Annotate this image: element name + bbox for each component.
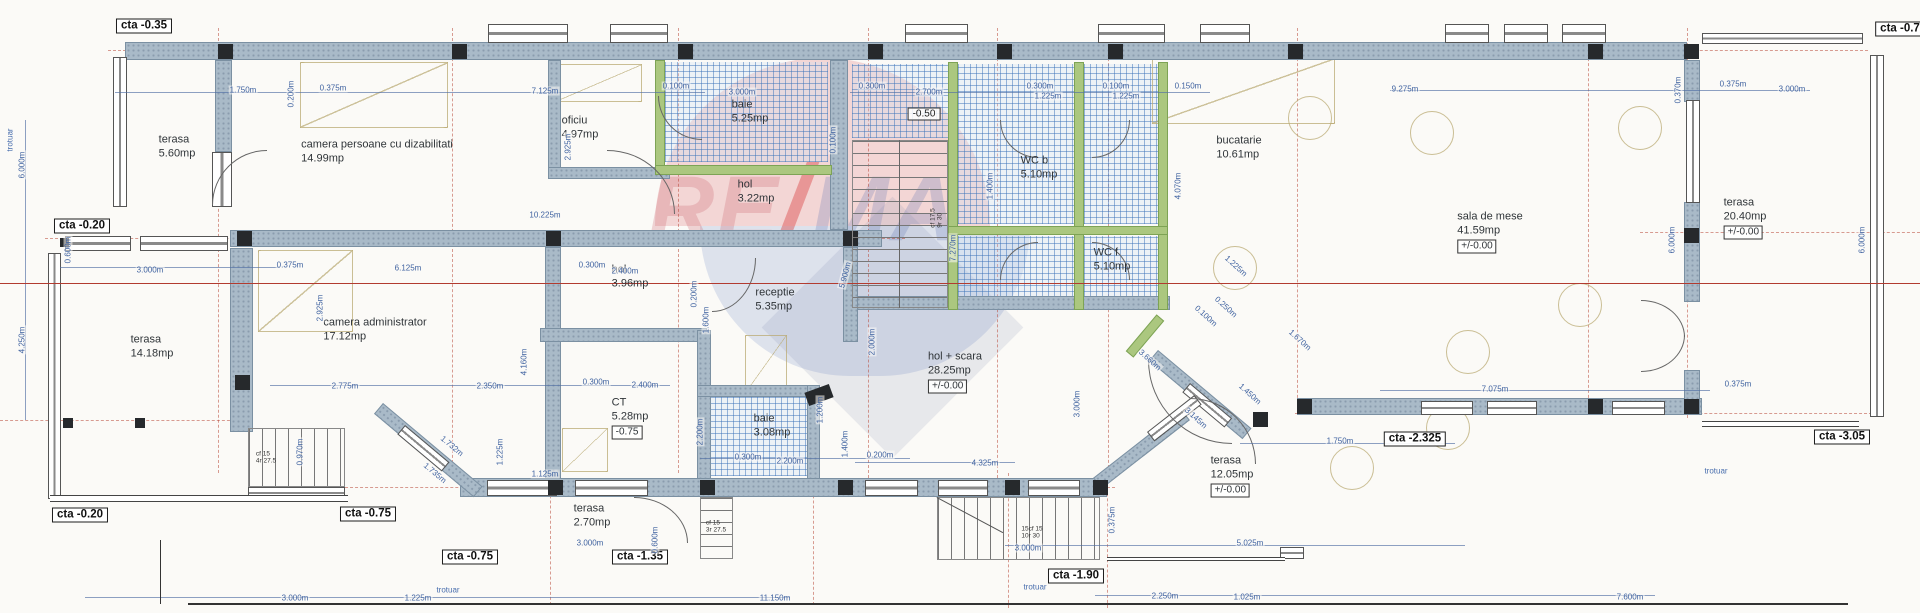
room-area: 5.28mp bbox=[612, 410, 649, 424]
room-area: 10.61mp bbox=[1216, 148, 1261, 162]
axis-dashed-line bbox=[452, 28, 453, 473]
dining-table-icon bbox=[1618, 106, 1662, 150]
dimension-15: 9.275m bbox=[1391, 85, 1420, 94]
room-label-3-baie: baie5.25mp bbox=[732, 98, 769, 126]
dimension-58: 0.100m bbox=[1192, 303, 1219, 329]
room-name: hol bbox=[738, 178, 775, 192]
dimension-68: 3.000m bbox=[576, 539, 605, 548]
room-name: camera persoane cu dizabilitati bbox=[301, 138, 453, 152]
section-line bbox=[0, 283, 1920, 284]
room-name: baie bbox=[732, 98, 769, 112]
dining-table-icon bbox=[1558, 283, 1602, 327]
dimension-46: 0.200m bbox=[866, 451, 895, 460]
dimension-32: 7.270m bbox=[949, 234, 958, 263]
level-marker-0: cta -0.35 bbox=[116, 19, 172, 34]
door-swing-arc bbox=[634, 497, 688, 543]
level-marker-2: cta -0.20 bbox=[52, 508, 108, 523]
stair-note-1: cf 15 3r 27.5 bbox=[706, 520, 726, 535]
furniture-outline bbox=[556, 64, 642, 102]
room-label-13-receptie: receptie5.35mp bbox=[755, 286, 794, 314]
column-marker bbox=[1253, 412, 1268, 427]
dimension-2: 0.200m bbox=[287, 80, 296, 109]
level-marker-6: cta -1.90 bbox=[1048, 569, 1104, 584]
room-area: 3.96mp bbox=[612, 277, 649, 291]
window bbox=[487, 480, 557, 496]
room-area: 5.60mp bbox=[159, 147, 196, 161]
column-marker bbox=[678, 44, 693, 59]
dimension-14: 0.150m bbox=[1174, 82, 1203, 91]
annotation-trotuar-0: trotuar bbox=[436, 586, 459, 595]
dimension-38: 2.400m bbox=[631, 381, 660, 390]
wall-segment bbox=[540, 328, 707, 342]
dining-table-icon bbox=[1330, 446, 1374, 490]
room-name: oficiu bbox=[562, 114, 599, 128]
wall-segment bbox=[1684, 60, 1700, 102]
wall-segment bbox=[125, 42, 1687, 60]
room-label-8-sala-de-mese: sala de mese41.59mp+/-0.00 bbox=[1457, 211, 1522, 254]
dimension-44: 0.300m bbox=[734, 453, 763, 462]
column-marker bbox=[1108, 44, 1123, 59]
room-name: camera administrator bbox=[323, 316, 426, 330]
window bbox=[938, 480, 988, 496]
dimension-60: 1.750m bbox=[1326, 437, 1355, 446]
column-marker bbox=[452, 44, 467, 59]
dimension-75: 1.025m bbox=[1233, 593, 1262, 602]
column-marker bbox=[700, 480, 715, 495]
dimension-23: 0.375m bbox=[276, 261, 305, 270]
dimension-31: 2.000m bbox=[868, 328, 877, 357]
room-label-17-terasa: terasa2.70mp bbox=[574, 502, 611, 530]
room-area: 2.70mp bbox=[574, 516, 611, 530]
room-elevation: -0.75 bbox=[612, 425, 643, 440]
dimension-9: 2.700m bbox=[915, 88, 944, 97]
wall-segment bbox=[548, 60, 561, 170]
wall-segment bbox=[230, 248, 253, 432]
dimension-10: 0.300m bbox=[1026, 82, 1055, 91]
window bbox=[1487, 401, 1537, 415]
dimension-line bbox=[115, 92, 705, 93]
dimension-70: 0.970m bbox=[296, 438, 305, 467]
column-marker bbox=[63, 418, 73, 428]
room-name: WC b bbox=[1021, 154, 1058, 168]
dimension-42: 1.225m bbox=[496, 438, 505, 467]
room-label-9-terasa: terasa20.40mp+/-0.00 bbox=[1724, 197, 1767, 240]
spot-elevation-0: -0.50 bbox=[908, 108, 941, 121]
room-area: 14.99mp bbox=[301, 152, 453, 166]
green-wall-segment bbox=[655, 165, 832, 175]
dimension-36: 4.160m bbox=[520, 348, 529, 377]
window bbox=[488, 24, 568, 43]
dimension-47: 1.200m bbox=[816, 396, 825, 425]
room-area: 5.25mp bbox=[732, 112, 769, 126]
window bbox=[48, 253, 61, 499]
column-marker bbox=[1288, 44, 1303, 59]
dimension-35: 2.350m bbox=[476, 382, 505, 391]
room-label-4-hol: hol3.22mp bbox=[738, 178, 775, 206]
dining-table-icon bbox=[1410, 111, 1454, 155]
level-marker-8: cta -3.05 bbox=[1814, 430, 1870, 445]
column-marker bbox=[1684, 228, 1699, 243]
column-marker bbox=[838, 480, 853, 495]
level-marker-9: cta -0.7 bbox=[1875, 22, 1920, 37]
room-elevation: +/-0.00 bbox=[1457, 239, 1496, 254]
dimension-74: 2.250m bbox=[1151, 592, 1180, 601]
room-area: 5.35mp bbox=[755, 300, 794, 314]
room-area: 3.08mp bbox=[754, 426, 791, 440]
door-swing-arc bbox=[1641, 300, 1685, 337]
green-wall-segment bbox=[1158, 62, 1168, 310]
column-marker bbox=[997, 44, 1012, 59]
window bbox=[1028, 480, 1080, 496]
room-label-15-baie: baie3.08mp bbox=[754, 412, 791, 440]
window bbox=[610, 24, 668, 43]
dimension-19: 6.000m bbox=[18, 151, 27, 180]
window bbox=[1702, 33, 1863, 44]
dining-table-icon bbox=[1288, 96, 1332, 140]
dining-table-icon bbox=[1446, 330, 1490, 374]
level-marker-5: cta -1.35 bbox=[612, 550, 668, 565]
window bbox=[1421, 401, 1473, 415]
dimension-59: 0.250m bbox=[1212, 294, 1239, 320]
dimension-73: 11.150m bbox=[759, 594, 792, 603]
wall-segment bbox=[1684, 202, 1700, 302]
dimension-72: 1.225m bbox=[404, 594, 433, 603]
window bbox=[905, 24, 968, 43]
terrace-edge bbox=[1107, 557, 1285, 561]
window bbox=[65, 236, 131, 251]
room-area: 41.59mp bbox=[1457, 224, 1522, 238]
dimension-39: 2.200m bbox=[696, 418, 705, 447]
dimension-56: 1.450m bbox=[1236, 381, 1263, 407]
tile-hatch bbox=[852, 64, 948, 138]
room-elevation: +/-0.00 bbox=[1724, 225, 1763, 240]
green-wall-segment bbox=[948, 226, 1168, 235]
dimension-13: 1.225m bbox=[1112, 92, 1141, 101]
room-area: 12.05mp bbox=[1211, 468, 1254, 482]
dimension-line bbox=[1380, 390, 1710, 391]
column-marker bbox=[237, 231, 252, 246]
dimension-6: 3.000m bbox=[728, 88, 757, 97]
window bbox=[140, 236, 228, 251]
room-label-11-camera-administrator: camera administrator17.12mp bbox=[323, 316, 426, 344]
annotation-trotuar-3: trotuar bbox=[6, 128, 15, 151]
dimension-16: 0.375m bbox=[1719, 80, 1748, 89]
room-name: bucatarie bbox=[1216, 134, 1261, 148]
room-name: terasa bbox=[159, 133, 196, 147]
room-area: 5.10mp bbox=[1094, 260, 1131, 274]
window bbox=[865, 480, 918, 496]
column-marker bbox=[1297, 399, 1312, 414]
room-label-16-hol-scara: hol + scara28.25mp+/-0.00 bbox=[928, 351, 982, 394]
axis-dashed-line bbox=[0, 420, 240, 421]
room-area: 17.12mp bbox=[323, 330, 426, 344]
dimension-22: 3.000m bbox=[136, 266, 165, 275]
dimension-0: 1.750m bbox=[229, 86, 258, 95]
door-swing-arc bbox=[1641, 335, 1685, 372]
room-name: terasa bbox=[1724, 197, 1767, 211]
ground-line bbox=[188, 603, 1848, 605]
dimension-52: 4.325m bbox=[971, 459, 1000, 468]
dimension-50: 4.070m bbox=[1174, 172, 1183, 201]
wall-segment bbox=[215, 60, 232, 152]
furniture-outline bbox=[300, 62, 448, 128]
room-area: 20.40mp bbox=[1724, 210, 1767, 224]
dimension-line bbox=[850, 92, 1210, 93]
room-label-14-ct: CT5.28mp-0.75 bbox=[612, 397, 649, 440]
window bbox=[1612, 401, 1665, 415]
room-label-6-wc-f: WC f5.10mp bbox=[1094, 246, 1131, 274]
dimension-57: 1.670m bbox=[1286, 327, 1313, 353]
dimension-76: 7.600m bbox=[1616, 593, 1645, 602]
window bbox=[1445, 24, 1489, 43]
level-marker-4: cta -0.75 bbox=[442, 550, 498, 565]
dimension-line bbox=[85, 597, 790, 598]
room-name: CT bbox=[612, 397, 649, 411]
dimension-65: 0.375m bbox=[1108, 506, 1117, 535]
window bbox=[1686, 100, 1700, 203]
window bbox=[1562, 24, 1606, 43]
column-marker bbox=[548, 480, 563, 495]
column-marker bbox=[235, 375, 250, 390]
stair-note-3: cf 17.5 9r 30 bbox=[930, 208, 945, 228]
dimension-49: 1.400m bbox=[986, 172, 995, 201]
dimension-71: 3.000m bbox=[281, 594, 310, 603]
room-label-0-terasa: terasa5.60mp bbox=[159, 133, 196, 161]
dimension-34: 2.775m bbox=[331, 382, 360, 391]
column-marker bbox=[135, 418, 145, 428]
green-wall-segment bbox=[1074, 62, 1084, 310]
dimension-24: 6.125m bbox=[394, 264, 423, 273]
window bbox=[575, 480, 648, 496]
room-area: 28.25mp bbox=[928, 364, 982, 378]
room-area: 5.10mp bbox=[1021, 168, 1058, 182]
room-name: receptie bbox=[755, 286, 794, 300]
window bbox=[1504, 24, 1548, 43]
dimension-7: 0.100m bbox=[829, 126, 838, 155]
level-marker-7: cta -2.325 bbox=[1384, 432, 1446, 447]
dimension-5: 0.100m bbox=[662, 82, 691, 91]
dimension-8: 0.300m bbox=[858, 82, 887, 91]
column-marker bbox=[1684, 399, 1699, 414]
dimension-line bbox=[60, 267, 280, 268]
dimension-12: 0.100m bbox=[1102, 82, 1131, 91]
room-area: 3.22mp bbox=[738, 192, 775, 206]
dimension-1: 0.375m bbox=[319, 84, 348, 93]
annotation-trotuar-2: trotuar bbox=[1704, 467, 1727, 476]
green-wall-segment bbox=[948, 62, 958, 310]
dimension-66: 5.025m bbox=[1236, 539, 1265, 548]
furniture-outline bbox=[562, 428, 608, 472]
stair-note-2: 15cf 15 10r 30 bbox=[1021, 526, 1042, 541]
room-name: sala de mese bbox=[1457, 211, 1522, 225]
dimension-20: 0.600m bbox=[64, 236, 73, 265]
dimension-4: 2.925m bbox=[564, 133, 573, 162]
room-name: terasa bbox=[574, 502, 611, 516]
room-label-18-terasa: terasa12.05mp+/-0.00 bbox=[1211, 455, 1254, 498]
dimension-67: 3.000m bbox=[1014, 544, 1043, 553]
dimension-37: 0.300m bbox=[582, 378, 611, 387]
room-area: 14.18mp bbox=[131, 347, 174, 361]
level-marker-1: cta -0.20 bbox=[54, 219, 110, 234]
dimension-53: 3.000m bbox=[1073, 390, 1082, 419]
dimension-43: 1.125m bbox=[531, 470, 560, 479]
dimension-21: 4.250m bbox=[18, 326, 27, 355]
window bbox=[113, 57, 127, 207]
floorplan-scan: RE/MA bbox=[0, 0, 1920, 613]
room-name: hol + scara bbox=[928, 351, 982, 365]
room-label-5-wc-b: WC b5.10mp bbox=[1021, 154, 1058, 182]
column-marker bbox=[218, 44, 233, 59]
room-name: WC f bbox=[1094, 246, 1131, 260]
tile-hatch bbox=[958, 236, 1166, 304]
dimension-26: 0.300m bbox=[578, 261, 607, 270]
column-marker bbox=[1588, 399, 1603, 414]
room-name: terasa bbox=[1211, 455, 1254, 469]
dimension-61: 7.075m bbox=[1481, 385, 1510, 394]
room-elevation: +/-0.00 bbox=[1211, 483, 1250, 498]
dimension-25: 10.225m bbox=[528, 211, 561, 220]
window bbox=[1870, 55, 1884, 417]
dimension-11: 1.225m bbox=[1034, 92, 1063, 101]
dimension-28: 0.200m bbox=[690, 280, 699, 309]
room-label-1-camera-persoane-cu-dizabilitati: camera persoane cu dizabilitati14.99mp bbox=[301, 138, 453, 166]
dimension-33: 2.925m bbox=[316, 294, 325, 323]
room-label-10-terasa: terasa14.18mp bbox=[131, 333, 174, 361]
axis-dashed-line bbox=[1588, 28, 1589, 413]
dimension-27: 2.400m bbox=[611, 267, 640, 276]
window bbox=[1098, 24, 1165, 43]
room-elevation: +/-0.00 bbox=[928, 379, 967, 394]
annotation-trotuar-1: trotuar bbox=[1023, 583, 1046, 592]
dimension-62: 0.375m bbox=[1724, 380, 1753, 389]
window bbox=[1200, 24, 1250, 43]
door-swing-arc bbox=[712, 258, 756, 312]
dimension-69: 0.600m bbox=[651, 526, 660, 555]
room-name: terasa bbox=[131, 333, 174, 347]
column-marker bbox=[1684, 44, 1699, 59]
dimension-48: 1.400m bbox=[841, 430, 850, 459]
curb-line bbox=[160, 540, 161, 604]
column-marker bbox=[1005, 480, 1020, 495]
dimension-17: 3.000m bbox=[1778, 85, 1807, 94]
stair-note-0: cf 15 4r 27.5 bbox=[256, 451, 276, 466]
terrace-edge bbox=[50, 495, 348, 502]
column-marker bbox=[868, 44, 883, 59]
level-marker-3: cta -0.75 bbox=[340, 507, 396, 522]
dimension-64: 6.000m bbox=[1858, 226, 1867, 255]
column-marker bbox=[546, 231, 561, 246]
column-marker bbox=[1588, 44, 1603, 59]
dimension-63: 6.000m bbox=[1668, 226, 1677, 255]
wall-segment bbox=[697, 385, 819, 397]
dimension-45: 2.200m bbox=[776, 457, 805, 466]
dimension-3: 7.125m bbox=[531, 87, 560, 96]
column-marker bbox=[1093, 480, 1108, 495]
dimension-18: 0.370m bbox=[1674, 76, 1683, 105]
dimension-line bbox=[1390, 90, 1810, 91]
dimension-29: 1.600m bbox=[702, 306, 711, 335]
room-label-7-bucatarie: bucatarie10.61mp bbox=[1216, 134, 1261, 162]
terrace-edge bbox=[1702, 421, 1859, 427]
room-name: baie bbox=[754, 412, 791, 426]
